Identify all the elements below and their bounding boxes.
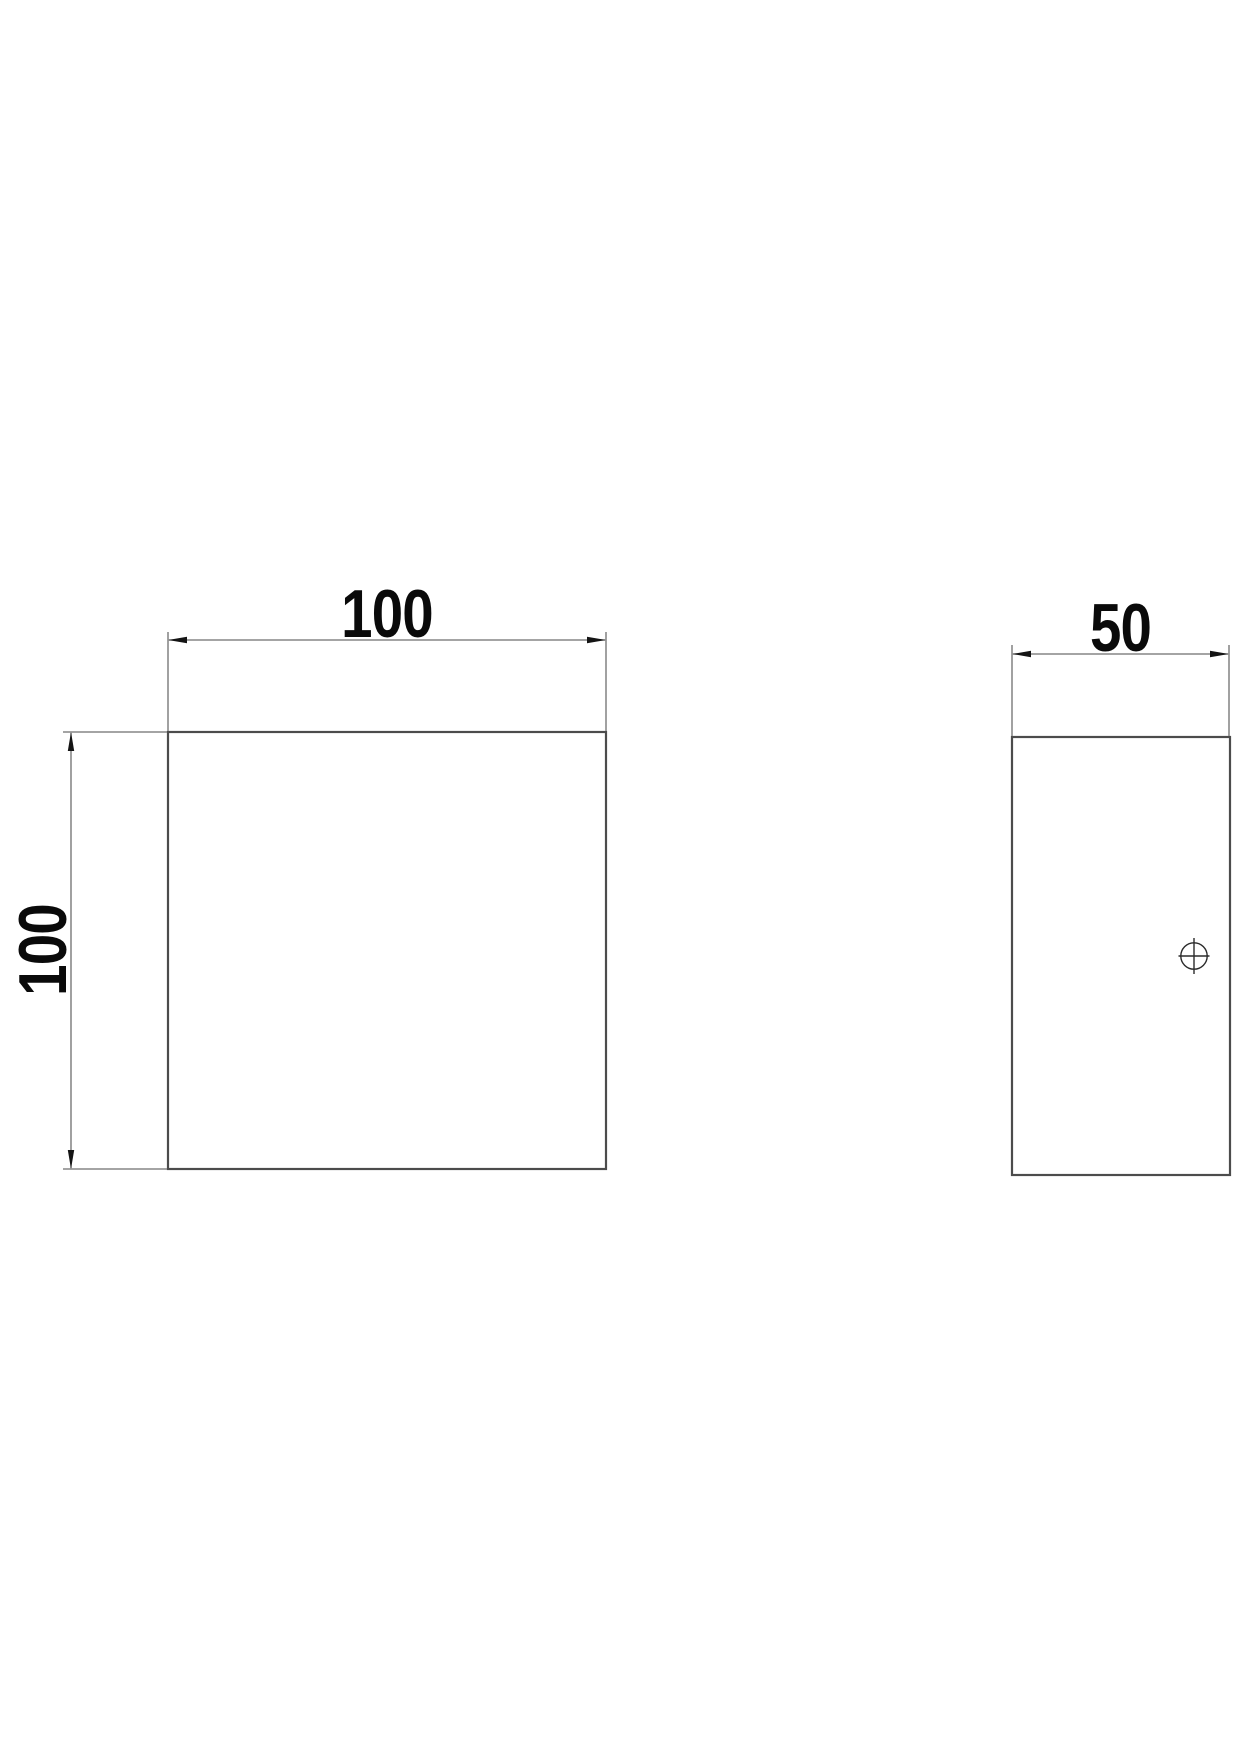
side-width-dimension-text: 50 <box>1090 590 1151 666</box>
arrow-right-icon <box>1210 651 1229 657</box>
drawing-canvas: 100 100 50 <box>0 0 1242 1757</box>
technical-drawing: 100 100 50 <box>0 0 1242 1757</box>
front-view-outline <box>168 732 606 1169</box>
front-width-dimension-text: 100 <box>341 576 433 652</box>
arrow-down-icon <box>68 1150 74 1169</box>
front-height-dimension-text: 100 <box>5 904 81 996</box>
hole-marker-icon <box>1179 938 1210 974</box>
arrow-left-icon <box>1012 651 1031 657</box>
arrow-up-icon <box>68 732 74 751</box>
arrow-right-icon <box>587 637 606 643</box>
arrow-left-icon <box>168 637 187 643</box>
